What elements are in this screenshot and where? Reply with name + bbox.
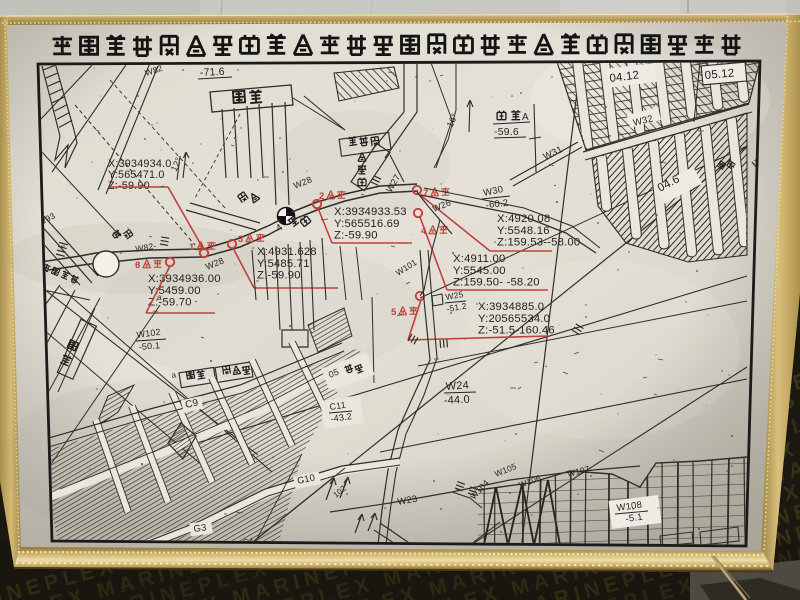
svg-text:6: 6: [135, 260, 140, 271]
svg-text:a: a: [157, 293, 162, 302]
svg-text:Z:-51.5-160.46: Z:-51.5-160.46: [478, 325, 555, 337]
svg-text:X:4931.628: X:4931.628: [257, 246, 317, 258]
svg-text:W24: W24: [445, 379, 469, 393]
svg-text:-44.0: -44.0: [444, 394, 471, 407]
svg-text:1: 1: [189, 242, 195, 253]
svg-text:5: 5: [391, 307, 397, 318]
svg-text:-59.6: -59.6: [494, 126, 519, 138]
svg-text:X:3934885.0: X:3934885.0: [478, 301, 544, 313]
svg-text:Z:-59.90: Z:-59.90: [257, 270, 301, 282]
svg-text:Z:-59.70: Z:-59.70: [148, 297, 192, 309]
svg-text:-50.1: -50.1: [138, 340, 160, 352]
svg-text:-60.2: -60.2: [485, 198, 509, 211]
svg-text:Z:159.53--58.00: Z:159.53--58.00: [497, 237, 580, 249]
svg-text:X:3934933.53: X:3934933.53: [334, 206, 407, 218]
svg-text:Z:-59.90: Z:-59.90: [108, 180, 150, 192]
svg-text:A: A: [522, 112, 529, 123]
svg-text:X:3934936.00: X:3934936.00: [148, 273, 221, 285]
svg-text:2: 2: [319, 191, 324, 202]
svg-text:Y:20565534.0: Y:20565534.0: [478, 313, 550, 325]
svg-text:-71.6: -71.6: [200, 66, 226, 79]
svg-text:Y:565516.69: Y:565516.69: [334, 218, 400, 230]
svg-text:Z:159.50- -58.20: Z:159.50- -58.20: [453, 277, 540, 289]
svg-text:3: 3: [238, 234, 243, 245]
svg-text:Y:5548.16: Y:5548.16: [497, 225, 550, 237]
svg-text:X:4911.00: X:4911.00: [453, 253, 505, 265]
svg-text:Y:5545.00: Y:5545.00: [453, 265, 506, 277]
svg-text:Z:-59.90: Z:-59.90: [334, 230, 378, 242]
svg-text:G3: G3: [193, 522, 207, 535]
